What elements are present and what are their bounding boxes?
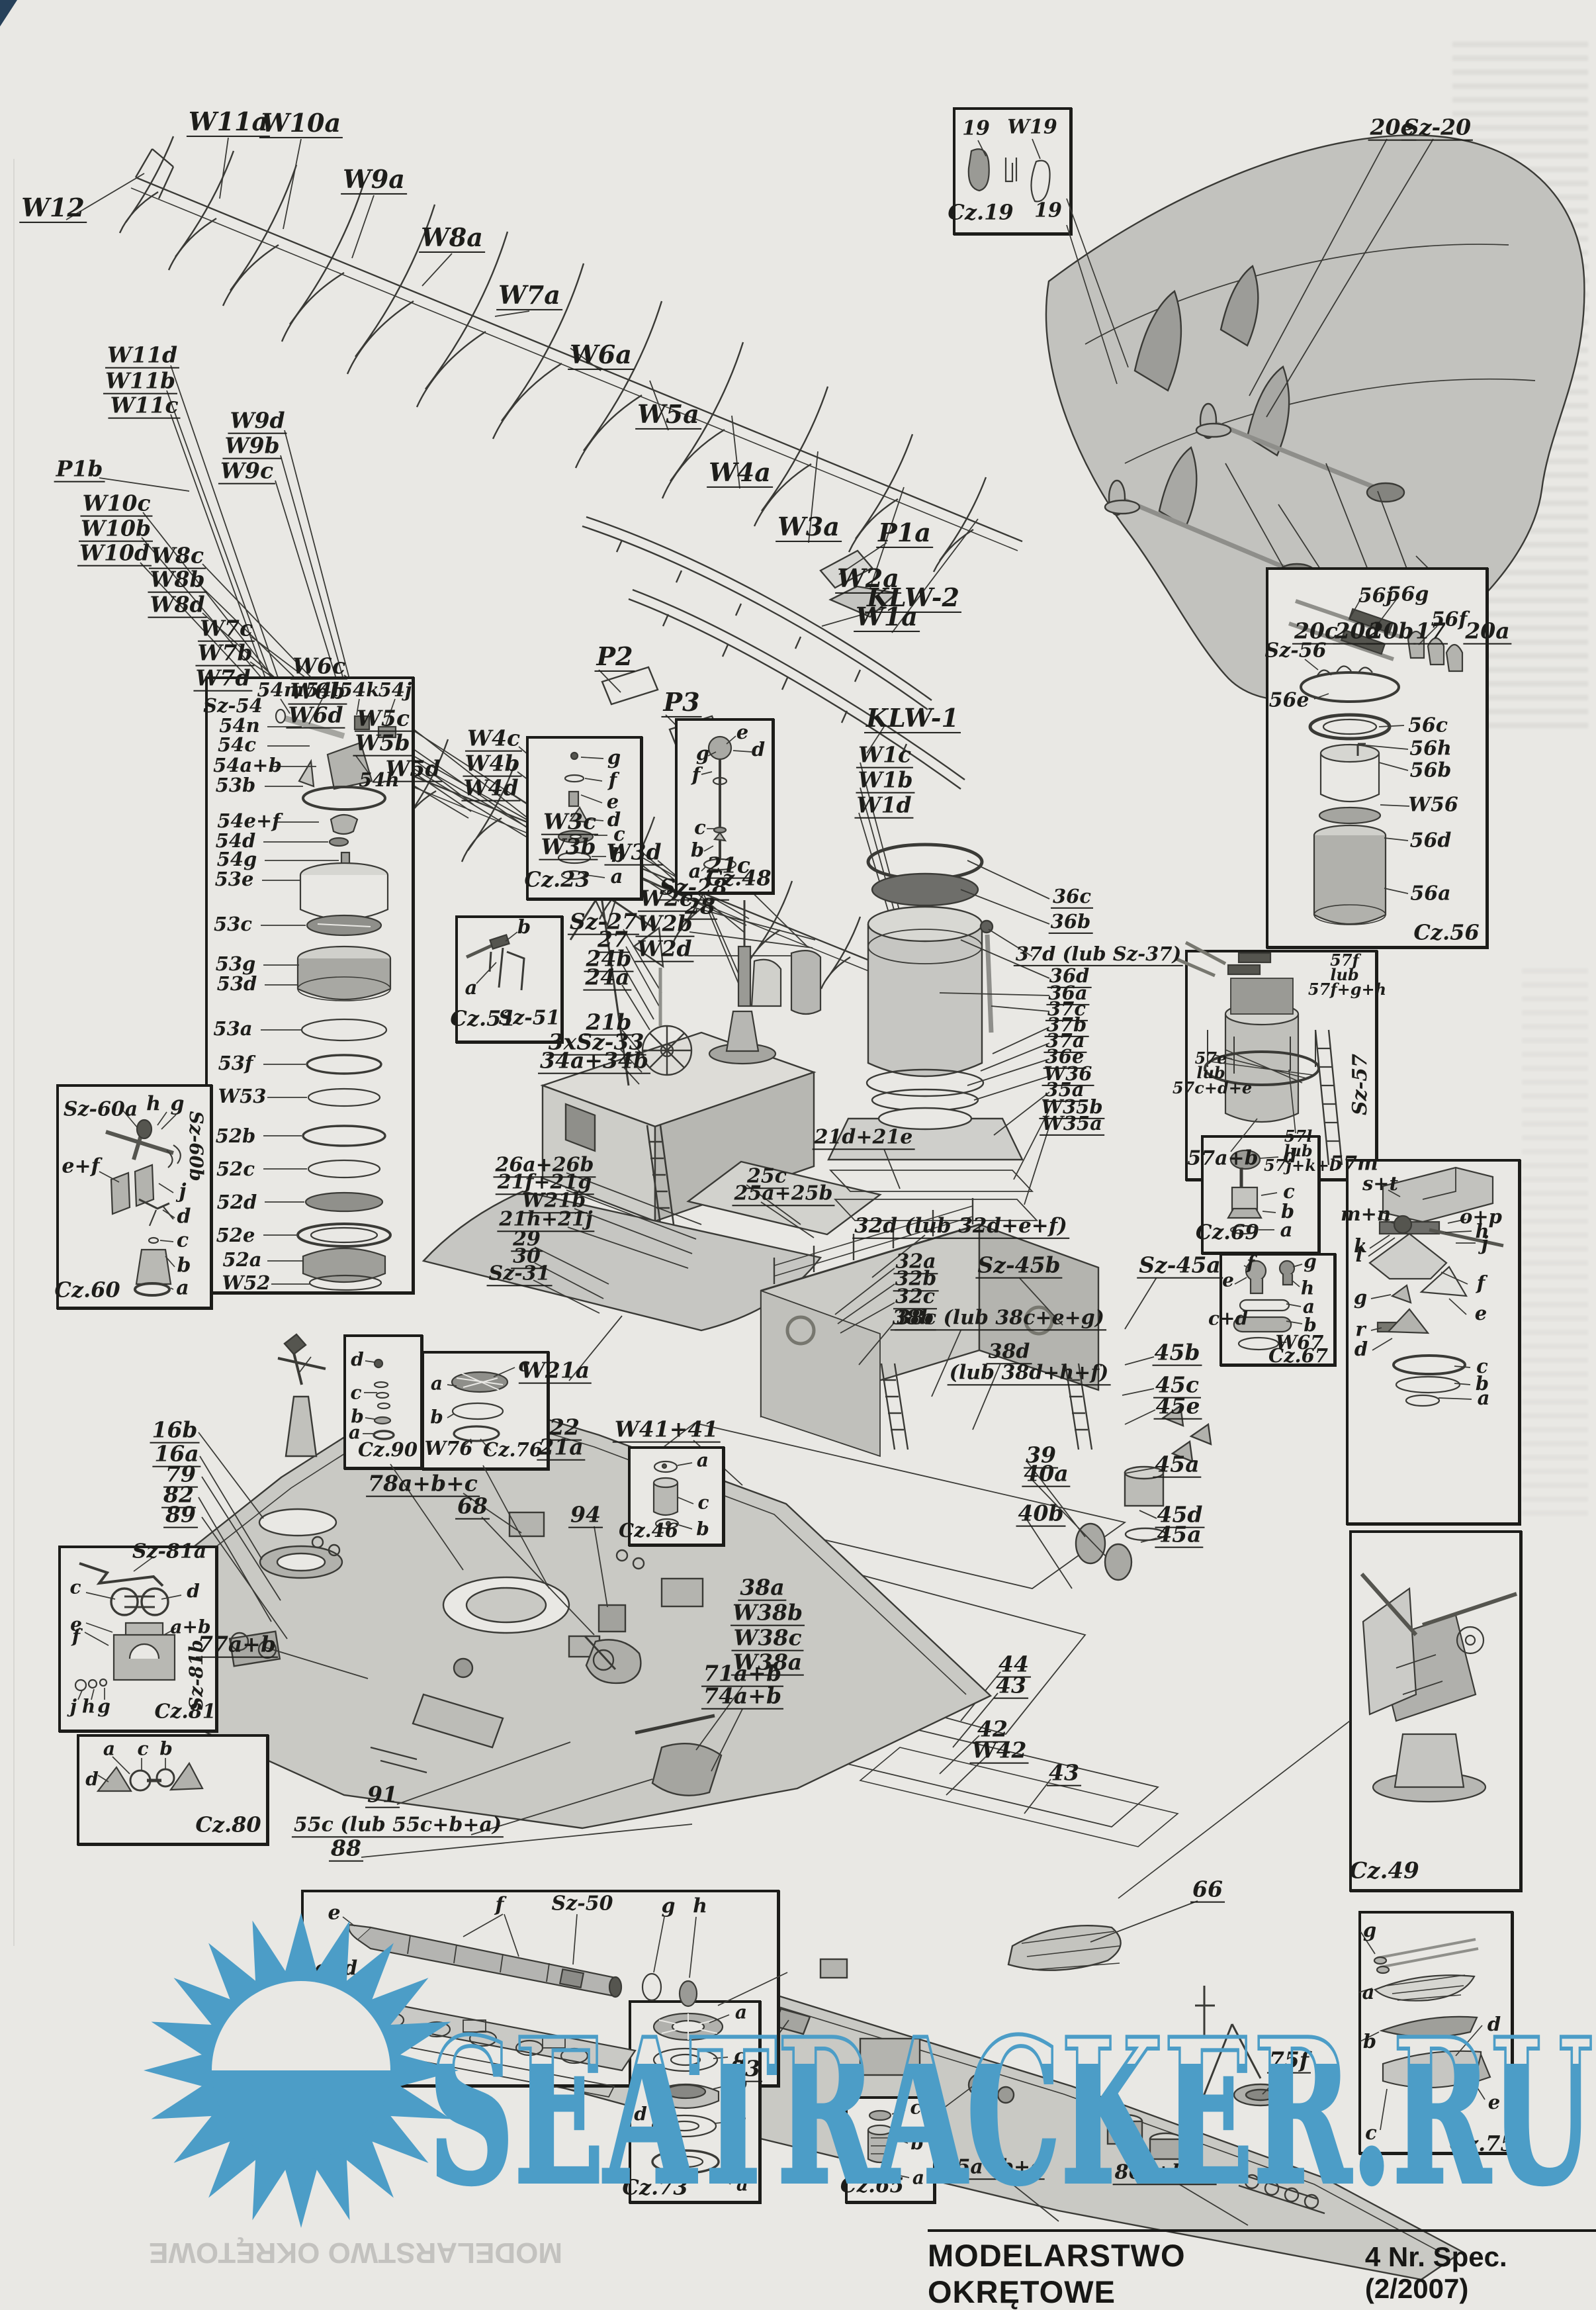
watermark: SEATRACKER.RU SEATRACKER.RU	[0, 0, 1596, 2280]
diagram-page: W12W11aW10aW9aW8aW7aW6aW5aW4aW3aW2aW1aW1…	[0, 0, 1596, 2280]
footer-magazine-title: MODELARSTWO OKRĘTOWE	[928, 2237, 1343, 2310]
footer-issue: 4 Nr. Spec. (2/2007)	[1365, 2241, 1596, 2305]
watermark-sun-icon	[144, 1913, 459, 2228]
page-footer: MODELARSTWO OKRĘTOWE 4 Nr. Spec. (2/2007…	[928, 2229, 1596, 2310]
